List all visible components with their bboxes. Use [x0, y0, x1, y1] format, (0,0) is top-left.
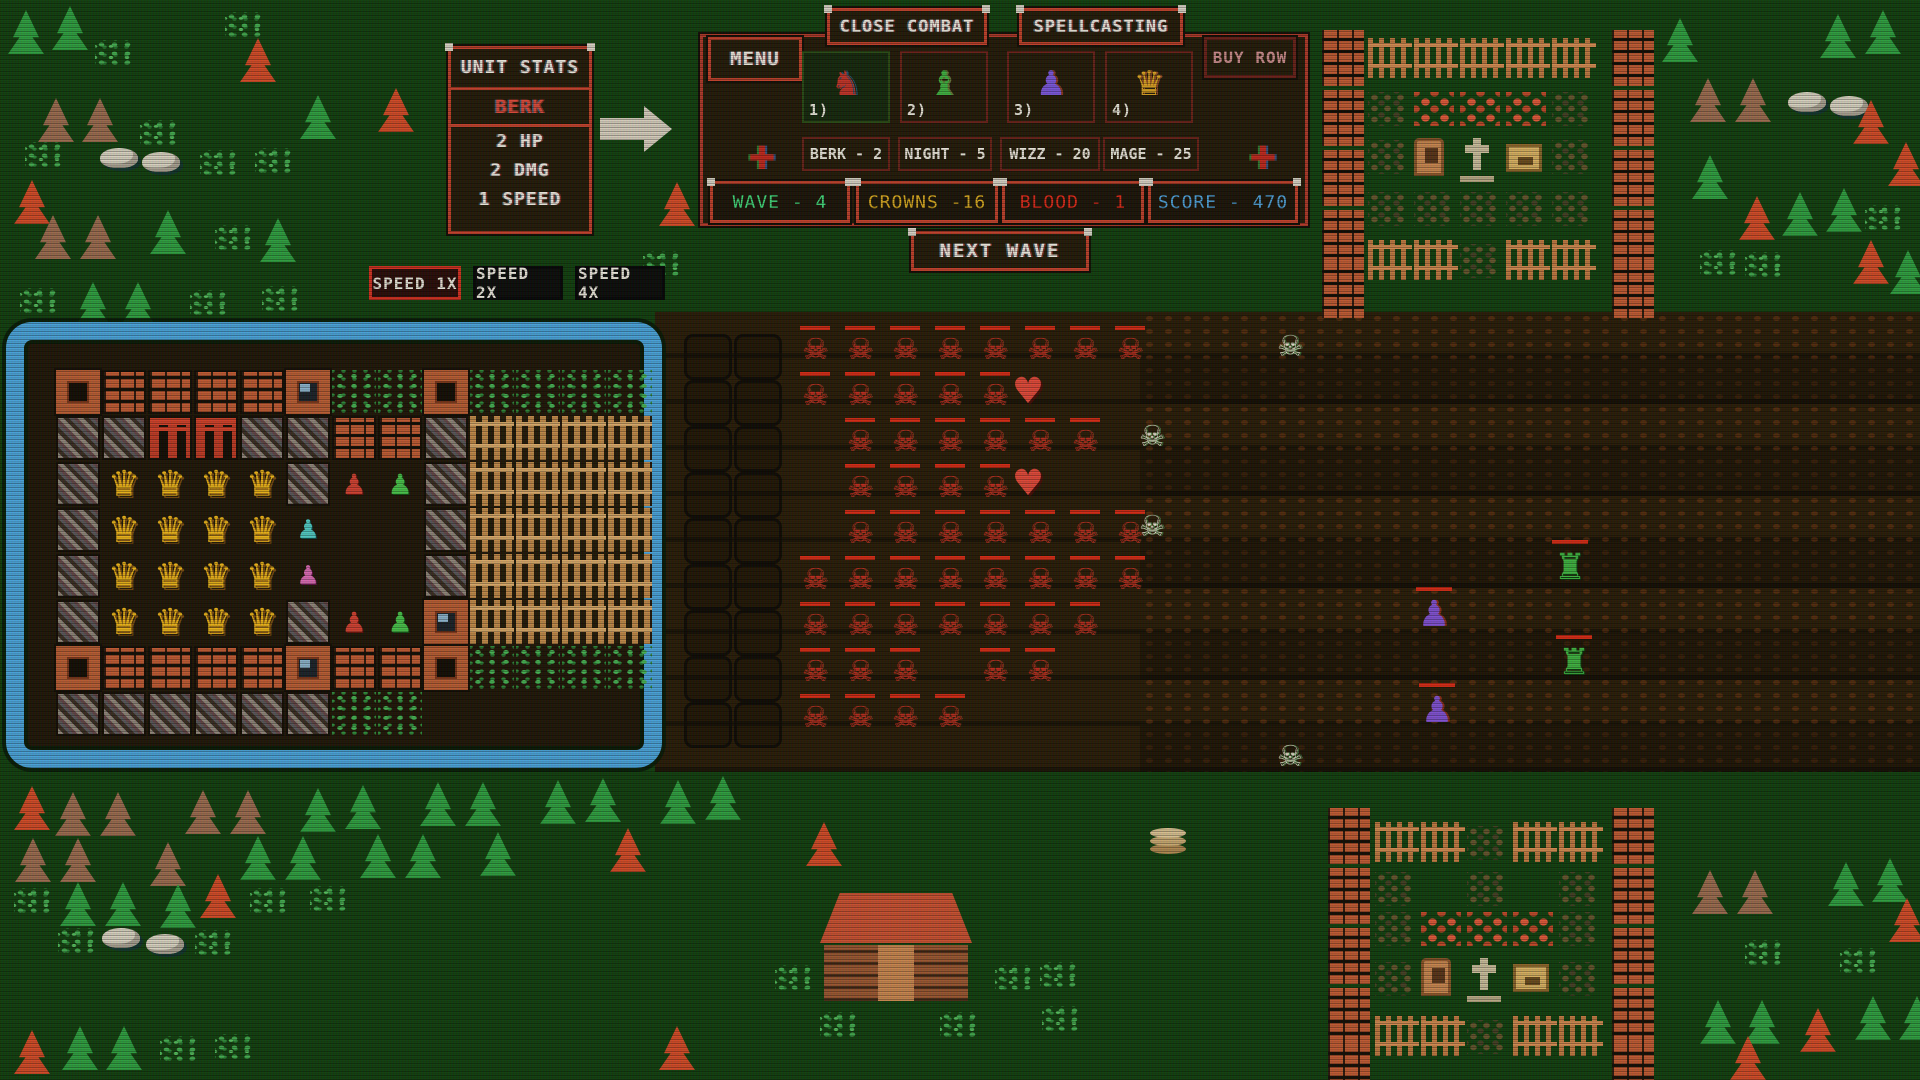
unit-cost-berk: BERK - 2 — [802, 137, 890, 171]
unit-slot-3-wizz[interactable]: ♟ 3) — [1007, 51, 1095, 123]
arrow-icon — [600, 106, 672, 152]
slot-number: 4) — [1112, 101, 1132, 119]
unit-stat-speed: 1 SPEED — [451, 185, 589, 214]
wizard-unit-icon: ♟ — [1036, 64, 1066, 104]
cross-deco-icon: ✚ — [742, 138, 782, 178]
unit-stats-panel: UNIT STATS BERK 2 HP 2 DMG 1 SPEED — [448, 46, 592, 234]
mage-unit-icon: ♛ — [1134, 64, 1164, 104]
unit-stats-title: UNIT STATS — [451, 49, 589, 90]
unit-slot-4-mage[interactable]: ♛ 4) — [1105, 51, 1193, 123]
knight-unit-icon: ♝ — [929, 64, 959, 104]
arrow-shaft — [600, 118, 644, 140]
spellcasting-tab[interactable]: SPELLCASTING — [1019, 8, 1183, 45]
speed-2x-button[interactable]: SPEED 2X — [473, 266, 563, 300]
blood-counter: BLOOD - 1 — [1002, 181, 1144, 223]
unit-cost-mage: MAGE - 25 — [1103, 137, 1199, 171]
wave-counter: WAVE - 4 — [710, 181, 850, 223]
crowns-counter: CROWNS -16 — [856, 181, 998, 223]
unit-stats-unit-name: BERK — [451, 90, 589, 127]
unit-slot-1-berk[interactable]: ♞ 1) — [802, 51, 890, 123]
menu-button[interactable]: MENU — [708, 37, 802, 81]
unit-cost-wizz: WIZZ - 20 — [1000, 137, 1100, 171]
next-wave-button[interactable]: NEXT WAVE — [911, 231, 1089, 271]
unit-stat-dmg: 2 DMG — [451, 156, 589, 185]
berserker-unit-icon: ♞ — [831, 64, 861, 104]
game-stage: ♛♛♛♛♟♟♛♛♛♛♟♛♛♛♛♟♛♛♛♛♟♟ ☠☠☠☠♥♥♜♜♟♟☠☠☠☠☠☠☠… — [0, 0, 1920, 1080]
slot-number: 1) — [809, 101, 829, 119]
arrow-head — [644, 106, 672, 152]
score-counter: SCORE - 470 — [1148, 181, 1298, 223]
unit-slot-2-night[interactable]: ♝ 2) — [900, 51, 988, 123]
buy-row-button[interactable]: BUY ROW — [1204, 37, 1296, 78]
unit-stat-hp: 2 HP — [451, 127, 589, 156]
slot-number: 2) — [907, 101, 927, 119]
unit-cost-night: NIGHT - 5 — [898, 137, 992, 171]
cross-deco-icon: ✚ — [1243, 138, 1283, 178]
hud-layer: UNIT STATS BERK 2 HP 2 DMG 1 SPEED MENU … — [0, 0, 1920, 1080]
slot-number: 3) — [1014, 101, 1034, 119]
speed-4x-button[interactable]: SPEED 4X — [575, 266, 665, 300]
close-combat-tab[interactable]: CLOSE COMBAT — [827, 8, 987, 45]
speed-1x-button[interactable]: SPEED 1X — [369, 266, 461, 300]
